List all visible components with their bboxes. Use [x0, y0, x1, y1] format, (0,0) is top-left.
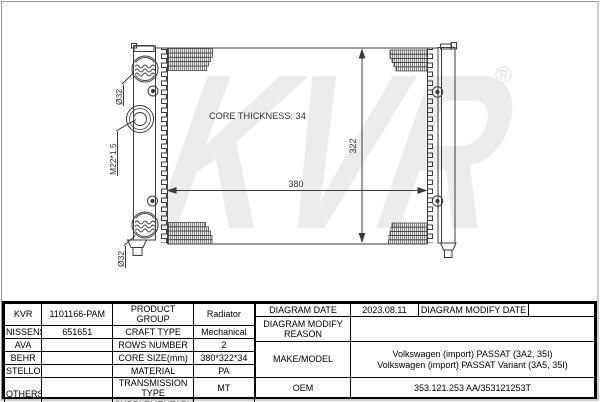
left-crimp-teeth [156, 48, 167, 243]
registered-trademark-symbol: ® [495, 62, 512, 88]
stellox-part-number [42, 364, 113, 377]
table-row: STELLOX MATERIAL PA [5, 364, 255, 377]
diagram-modify-date-value [529, 304, 595, 317]
brand-ava: AVA [5, 338, 42, 351]
make-model-label: MAKE/MODEL [256, 342, 351, 378]
diagram-modify-date-label: DIAGRAM MODIFY DATE [419, 304, 529, 317]
core-size-value: 380*322*34 [193, 351, 254, 364]
diagram-date-label: DIAGRAM DATE [256, 304, 351, 317]
transmission-type-value: MT [193, 377, 254, 399]
brand-kvr: KVR [5, 304, 42, 326]
material-value: PA [193, 364, 254, 377]
height-dimension-label: 322 [348, 138, 358, 153]
craft-type-value: Mechanical [193, 325, 254, 338]
make-model-line-1: Volkswagen (import) PASSAT (3A2, 35I) [352, 349, 593, 359]
rows-number-value: 2 [193, 338, 254, 351]
diagram-info-table: DIAGRAM DATE 2023.08.11 DIAGRAM MODIFY D… [255, 303, 595, 399]
behr-part-number [42, 351, 113, 364]
table-row: DIAGRAM MODIFY REASON [256, 317, 595, 342]
brand-behr: BEHR [5, 351, 42, 364]
diagram-modify-reason-label: DIAGRAM MODIFY REASON [256, 317, 351, 342]
nissens-part-number: 651651 [42, 325, 113, 338]
catalog-page: KVR ® [0, 0, 600, 402]
table-row: AVA ROWS NUMBER 2 [5, 338, 255, 351]
table-row: NISSENS 651651 CRAFT TYPE Mechanical [5, 325, 255, 338]
diagram-date-value: 2023.08.11 [351, 304, 419, 317]
right-crimp-teeth [427, 48, 438, 243]
product-group-value: Radiator [193, 304, 254, 326]
table-row: MAKE/MODEL Volkswagen (import) PASSAT (3… [256, 342, 595, 378]
inlet-port [132, 56, 158, 82]
transmission-type-label: TRANSMISSION TYPE [113, 377, 193, 399]
width-dimension-label: 380 [288, 179, 303, 189]
make-model-value: Volkswagen (import) PASSAT (3A2, 35I) Vo… [351, 342, 595, 378]
oem-value: 353.121.253 AA/353121253T [351, 378, 595, 399]
threaded-port [127, 106, 154, 133]
brand-stellox: STELLOX [5, 364, 42, 377]
rows-number-label: ROWS NUMBER [113, 338, 193, 351]
table-row: OEM 353.121.253 AA/353121253T [256, 378, 595, 399]
table-row: KVR 1101166-PAM PRODUCT GROUP Radiator [5, 304, 255, 326]
core-size-label: CORE SIZE(mm) [113, 351, 193, 364]
outlet-port [132, 212, 158, 238]
table-row: OTHERS TRANSMISSION TYPE MT [5, 377, 255, 399]
diagram-modify-reason-value [351, 317, 595, 342]
brand-others: OTHERS [5, 377, 42, 402]
left-tank [134, 46, 156, 240]
kvr-part-number: 1101166-PAM [42, 304, 113, 326]
ava-part-number [42, 338, 113, 351]
craft-type-label: CRAFT TYPE [113, 325, 193, 338]
spec-table: KVR 1101166-PAM PRODUCT GROUP Radiator N… [2, 301, 597, 399]
oem-label: OEM [256, 378, 351, 399]
table-row: DIAGRAM DATE 2023.08.11 DIAGRAM MODIFY D… [256, 304, 595, 317]
product-group-label: PRODUCT GROUP [113, 304, 193, 326]
others-part-number [42, 377, 113, 402]
material-label: MATERIAL [113, 364, 193, 377]
left-drain-plug [128, 240, 147, 248]
brand-nissens: NISSENS [5, 325, 42, 338]
make-model-line-2: Volkswagen (import) PASSAT Variant (3A5,… [352, 360, 593, 370]
core-thickness-label: CORE THICKNESS: 34 [209, 111, 306, 121]
thread-size-label: M22*1.5 [108, 143, 118, 175]
inlet-diameter-label: Ø32 [114, 89, 124, 105]
table-row: BEHR CORE SIZE(mm) 380*322*34 [5, 351, 255, 364]
brand-cross-reference-table: KVR 1101166-PAM PRODUCT GROUP Radiator N… [4, 303, 255, 402]
outlet-diameter-label: Ø32 [116, 251, 126, 267]
